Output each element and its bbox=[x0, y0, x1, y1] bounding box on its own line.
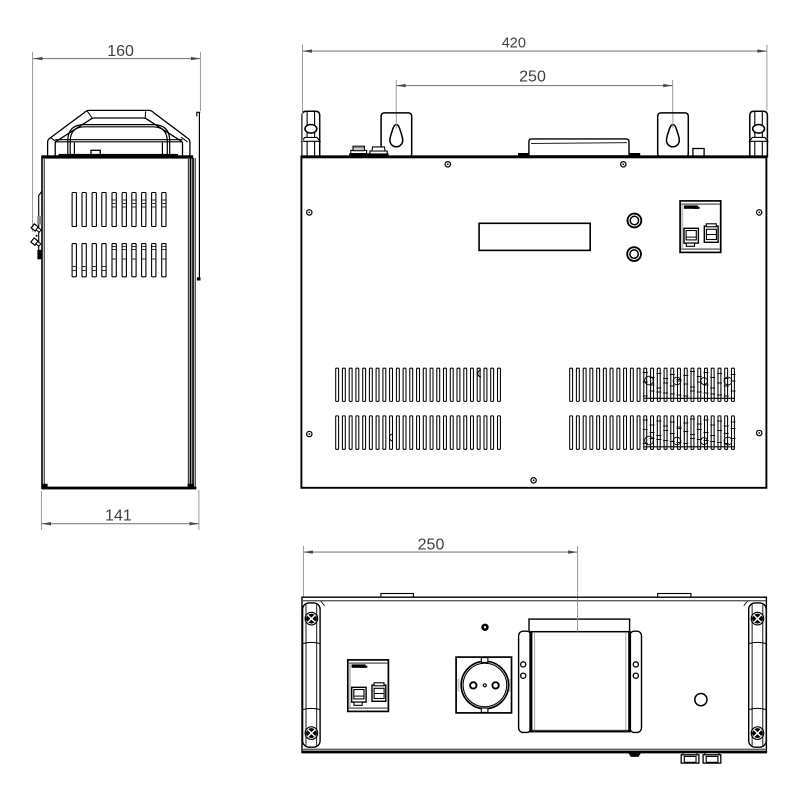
svg-text:141: 141 bbox=[105, 507, 132, 524]
svg-text:250: 250 bbox=[418, 536, 445, 553]
svg-text:420: 420 bbox=[502, 36, 526, 52]
svg-text:250: 250 bbox=[519, 68, 546, 85]
svg-text:160: 160 bbox=[107, 43, 134, 60]
